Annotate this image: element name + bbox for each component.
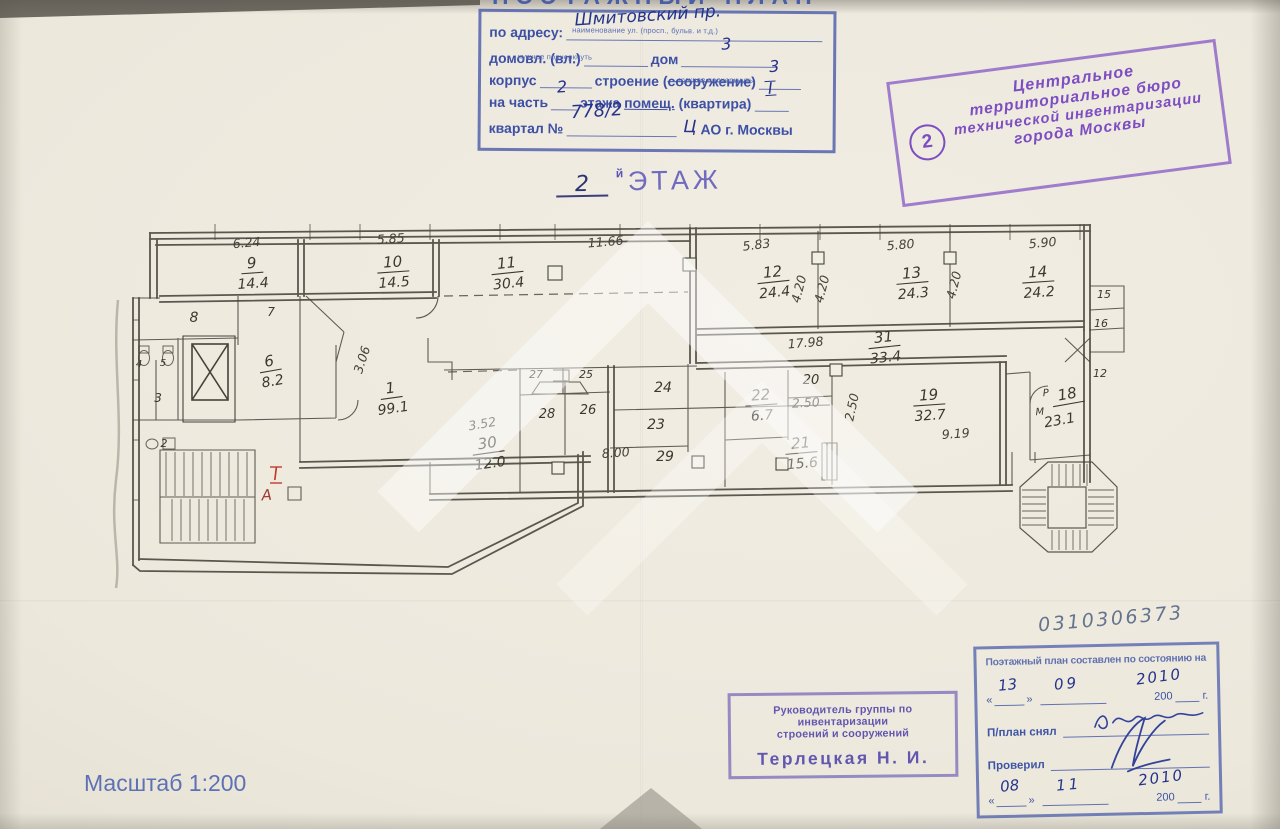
scale-label: Масштаб 1:200 [84, 770, 246, 797]
quote-close-2: » [1028, 794, 1034, 806]
address-caption: наименование ул. (просп., бульв. и т.д.) [572, 25, 718, 35]
form-row-kvartal: квартал № 778/2 Ц АО г. Москвы [489, 110, 825, 138]
dom-line: 3 [681, 51, 777, 68]
head-stamp-line-2: строений и сооружений [731, 727, 955, 741]
month-value-1: 09 [1054, 674, 1081, 694]
month-line-1: 09 [1040, 690, 1106, 705]
kvartira-value: I [764, 80, 776, 96]
year-hw-1: 2010 [1135, 665, 1183, 689]
floor-suffix: й [616, 166, 624, 180]
form-row-chast: на часть 2 этажа помещ. (квартира) I [489, 88, 825, 112]
dom-value: 3 [721, 34, 732, 54]
address-label: по адресу: [489, 24, 563, 41]
date-row-1: « 13 » 09 2010 200 г. [986, 688, 1208, 707]
pomesch-label: помещ. [624, 95, 675, 111]
head-stamp-line-1: Руководитель группы по инвентаризации [731, 703, 955, 729]
head-stamp-name: Терлецкая Н. И. [731, 747, 955, 770]
floor-title: 2й ЭТАЖ [556, 165, 722, 199]
scanned-floor-plan-document: 6.245.8511.665.835.805.9017.989.198.003.… [0, 0, 1280, 829]
paper-crease-horizontal [0, 600, 1280, 603]
floor-number: 2 [556, 175, 608, 198]
quote-open-2: « [988, 795, 994, 807]
kvartira-line: I [754, 96, 788, 112]
chast-value: 2 [557, 77, 568, 97]
note-underline-2: нужное подчеркнуть [679, 75, 799, 85]
year-suffix-1: г. [1202, 690, 1208, 702]
year-print-2: 200 [1156, 791, 1175, 803]
year-cluster-1: 2010 200 г. [1154, 688, 1208, 703]
address-line: Шмитовский пр. наименование ул. (просп.,… [566, 24, 822, 42]
address-form-stamp: по адресу: Шмитовский пр. наименование у… [478, 9, 837, 153]
day-line-1: 13 [994, 692, 1024, 707]
snyal-row: П/план снял [987, 721, 1209, 740]
kvartal-label: квартал № [489, 120, 564, 137]
kvartira-label: (квартира) [679, 95, 752, 112]
proveril-line [1051, 754, 1210, 771]
domovl-line: нужное подчеркнуть [584, 50, 648, 66]
korpus-label: корпус [489, 72, 537, 88]
month-value-2: 11 [1056, 775, 1083, 795]
year-print-1: 200 [1154, 690, 1173, 702]
year-line-1 [1175, 688, 1199, 702]
form-row-address: по адресу: Шмитовский пр. наименование у… [489, 14, 825, 42]
kvartal-value: 778/2 [570, 99, 623, 123]
year-cluster-2: 2010 200 г. [1156, 789, 1210, 804]
okrug-value: Ц [683, 117, 696, 137]
chast-label: на часть [489, 94, 548, 110]
date-row-2: « 08 » 11 2010 200 г. [988, 789, 1210, 808]
year-suffix-2: г. [1205, 791, 1211, 803]
date-stamp: Поэтажный план составлен по состоянию на… [973, 641, 1223, 818]
dom-label: дом [651, 51, 679, 67]
proveril-label: Проверил [988, 759, 1045, 772]
note-underline-1: нужное подчеркнуть [518, 52, 638, 62]
day-value-2: 08 [999, 776, 1020, 796]
month-line-2: 11 [1043, 791, 1109, 806]
okrug-label: АО г. Москвы [700, 121, 792, 138]
quote-close: » [1026, 693, 1032, 705]
day-line-2: 08 [996, 793, 1026, 808]
snyal-label: П/план снял [987, 726, 1057, 739]
stroenie-value: 3 [768, 57, 779, 77]
signature-stamp: Руководитель группы по инвентаризации ст… [728, 691, 959, 779]
day-value-1: 13 [997, 675, 1018, 695]
kvartal-line: 778/2 [566, 120, 676, 137]
year-line-2 [1178, 789, 1202, 803]
signature-proveril [1103, 714, 1174, 773]
floor-word: ЭТАЖ [628, 165, 722, 197]
quote-open: « [986, 694, 992, 706]
